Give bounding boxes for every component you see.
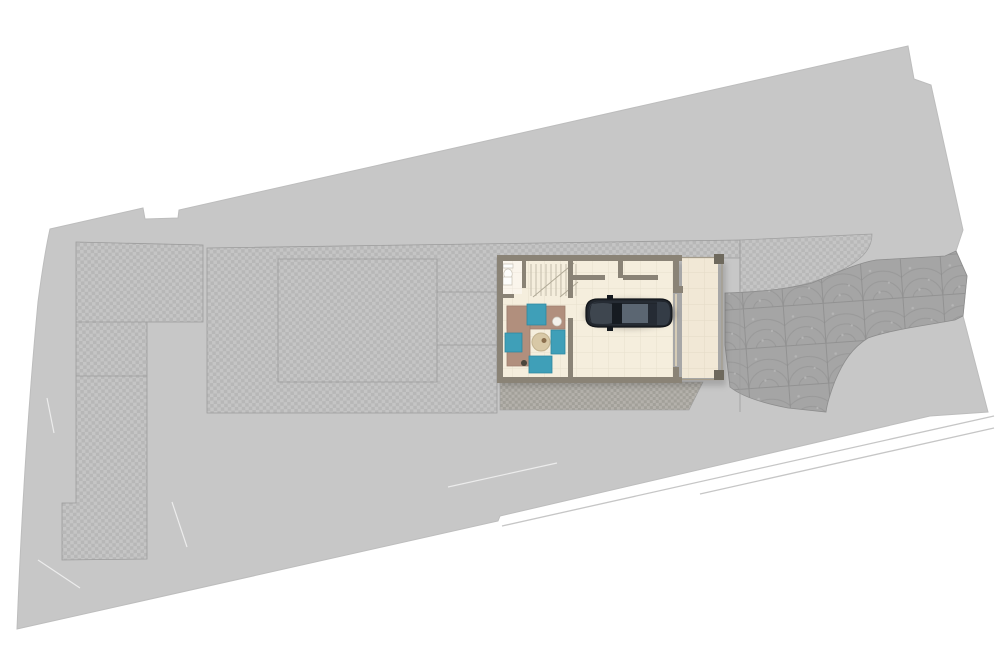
site-plan-svg bbox=[0, 0, 1000, 666]
armchair-teal-bottom bbox=[529, 356, 552, 373]
site-plan-stage bbox=[0, 0, 1000, 666]
floor-decor-dark bbox=[521, 360, 527, 366]
cushion-teal-left bbox=[505, 333, 522, 352]
house-floorplan bbox=[497, 254, 726, 386]
car-hood bbox=[590, 303, 612, 324]
car-trunk bbox=[657, 302, 670, 325]
paved-strip-garage-apron bbox=[500, 382, 703, 410]
coffee-table-round bbox=[532, 333, 550, 351]
armchair-teal-top bbox=[527, 304, 546, 325]
car-mirror-bottom bbox=[607, 327, 613, 331]
vase-white bbox=[553, 317, 562, 326]
toilet-tank bbox=[503, 264, 513, 268]
pouf-teal-right bbox=[551, 330, 565, 354]
parked-car-top-view bbox=[584, 295, 676, 331]
car-windshield bbox=[612, 303, 622, 324]
table-decor bbox=[542, 338, 547, 343]
car-roof bbox=[622, 304, 648, 323]
bathroom-sink bbox=[503, 277, 512, 285]
carport-tile-grid bbox=[682, 258, 718, 378]
car-mirror-top bbox=[607, 295, 613, 299]
car-rear-window bbox=[648, 304, 657, 323]
